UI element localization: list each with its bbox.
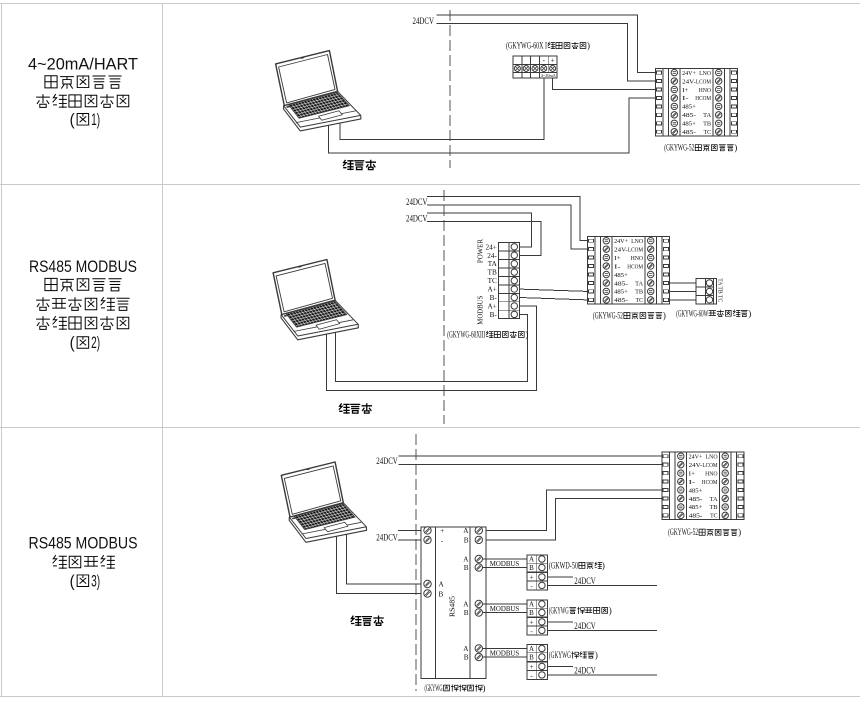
svg-text:A: A xyxy=(529,556,534,564)
svg-text:A: A xyxy=(463,556,469,564)
svg-text:TB: TB xyxy=(488,269,497,277)
svg-text:B: B xyxy=(464,536,469,544)
svg-text:TC: TC xyxy=(488,277,497,285)
svg-text:(: ( xyxy=(70,333,75,352)
svg-text:B-: B- xyxy=(490,311,498,319)
svg-text:B: B xyxy=(464,609,469,617)
svg-text:A: A xyxy=(439,581,445,589)
svg-text:A+: A+ xyxy=(488,286,497,294)
svg-text:1): 1) xyxy=(91,110,100,129)
svg-text:+: + xyxy=(530,574,534,582)
svg-text:B: B xyxy=(464,564,469,572)
svg-text:): ) xyxy=(483,683,486,693)
svg-text:B-: B- xyxy=(490,294,498,302)
svg-text:POWER: POWER xyxy=(477,239,485,263)
svg-text:2): 2) xyxy=(91,333,100,352)
svg-text:24DCV: 24DCV xyxy=(574,666,596,676)
svg-text:A: A xyxy=(463,527,469,535)
svg-text:): ) xyxy=(738,527,741,537)
svg-text:(GKYWG-52: (GKYWG-52 xyxy=(664,143,694,153)
svg-text:(GKYWG-52: (GKYWG-52 xyxy=(668,527,698,537)
svg-text:3): 3) xyxy=(91,571,100,590)
svg-text:): ) xyxy=(748,308,751,318)
svg-text:24DCV: 24DCV xyxy=(574,576,596,586)
svg-text:+: + xyxy=(530,619,534,627)
svg-text:B: B xyxy=(439,590,444,598)
svg-text:24DCV: 24DCV xyxy=(574,621,596,631)
svg-text:24+: 24+ xyxy=(486,243,497,251)
svg-text:24DCV: 24DCV xyxy=(406,197,428,207)
svg-text:B: B xyxy=(529,654,534,662)
svg-text:(GKYWG-60XIII: (GKYWG-60XIII xyxy=(447,330,485,340)
svg-text:24DCV: 24DCV xyxy=(406,213,428,223)
svg-text:4~20mA/HART: 4~20mA/HART xyxy=(28,55,138,74)
svg-text:4~20mA: 4~20mA xyxy=(541,73,556,78)
svg-text:RS485: RS485 xyxy=(449,596,457,617)
svg-text:TA: TA xyxy=(488,260,498,268)
svg-text:A: A xyxy=(463,645,469,653)
svg-text:): ) xyxy=(663,311,666,321)
svg-text:A: A xyxy=(529,601,534,609)
svg-text:MODBUS: MODBUS xyxy=(490,605,520,613)
svg-text:B: B xyxy=(529,564,534,572)
svg-text:(: ( xyxy=(70,110,75,129)
svg-text:MODBUS: MODBUS xyxy=(490,650,520,658)
svg-text:RS485 MODBUS: RS485 MODBUS xyxy=(29,534,138,553)
svg-text:(GKYWG-60X I: (GKYWG-60X I xyxy=(506,41,547,51)
svg-text:): ) xyxy=(609,605,612,615)
svg-text:TA TB TC: TA TB TC xyxy=(717,278,724,302)
svg-text:MODBUS: MODBUS xyxy=(477,296,485,325)
svg-text:(GKWD-50: (GKWD-50 xyxy=(549,560,578,570)
svg-text:): ) xyxy=(587,41,590,51)
svg-text:B: B xyxy=(529,609,534,617)
svg-text:(GKYWG: (GKYWG xyxy=(549,650,571,660)
svg-text:(GKYWG: (GKYWG xyxy=(549,605,569,615)
svg-text:(: ( xyxy=(70,571,75,590)
svg-text:24DCV: 24DCV xyxy=(413,16,435,26)
svg-text:24DCV: 24DCV xyxy=(376,533,398,543)
svg-text:): ) xyxy=(734,143,737,153)
svg-text:A: A xyxy=(463,601,469,609)
svg-text:): ) xyxy=(602,560,605,570)
svg-text:24-: 24- xyxy=(487,252,497,260)
svg-text:(GKYWG-60W: (GKYWG-60W xyxy=(676,308,708,318)
svg-text:+: + xyxy=(530,663,534,671)
svg-text:): ) xyxy=(525,330,528,340)
svg-text:24DCV: 24DCV xyxy=(376,456,398,466)
svg-text:(GKYWG: (GKYWG xyxy=(425,683,443,693)
svg-text:+: + xyxy=(551,57,555,65)
svg-text:A: A xyxy=(529,645,534,653)
svg-text:A+: A+ xyxy=(488,302,497,310)
svg-text:RS485 MODBUS: RS485 MODBUS xyxy=(29,257,137,276)
svg-text:): ) xyxy=(595,650,598,660)
svg-text:(GKYWG-52: (GKYWG-52 xyxy=(593,311,623,321)
svg-text:B: B xyxy=(464,654,469,662)
svg-text:MODBUS: MODBUS xyxy=(490,560,520,568)
svg-text:+: + xyxy=(440,527,444,535)
